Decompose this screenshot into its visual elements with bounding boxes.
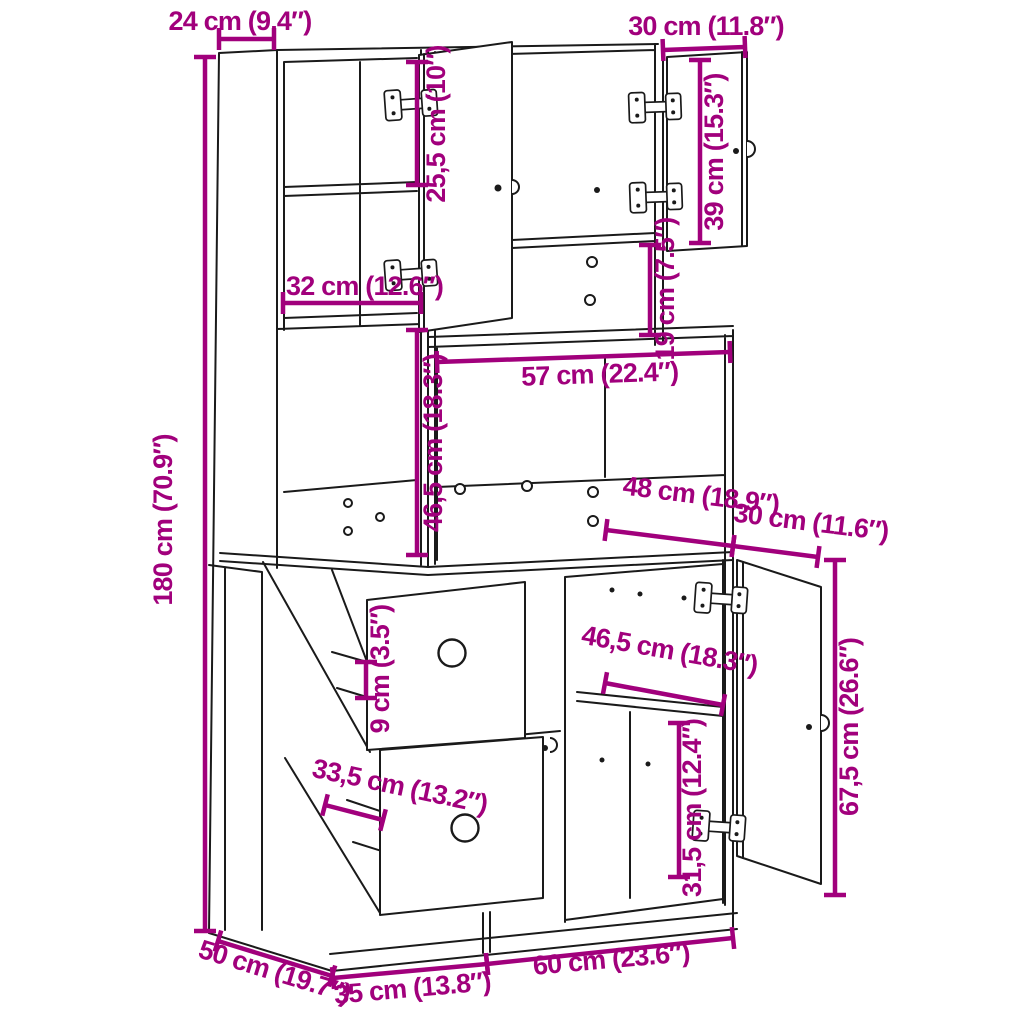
dimension-label-height_niche_small: 19 cm (7.5″) (650, 218, 680, 361)
dimension-line (663, 47, 745, 50)
dimension-tick (486, 953, 488, 975)
base-right-door-panel (737, 560, 821, 884)
dimension-height_gap: 9 cm (3.5″) (355, 605, 395, 734)
dimension-tick (605, 519, 608, 541)
dimension-label-width_base_left: 35 cm (13.8″) (333, 966, 492, 1010)
dimension-label-height_base_door: 67,5 cm (26.6″) (834, 638, 864, 816)
dimension-label-height_base_shelf: 31,5 cm (12.4″) (677, 719, 707, 897)
dimension-height_base_shelf: 31,5 cm (12.4″) (668, 719, 707, 897)
dimension-tick (732, 535, 735, 557)
door-handle-icon (821, 715, 829, 731)
dimension-label-width_base_right_bottom: 60 cm (23.6″) (532, 937, 691, 981)
dimension-tick (663, 39, 664, 61)
cabinet-dimension-drawing: 24 cm (9.4″)30 cm (11.8″)25,5 cm (10″)39… (0, 0, 1024, 1024)
door-handle-icon (550, 738, 557, 752)
door-finger-hole (439, 640, 466, 667)
dimension-depth_base_door: 30 cm (11.6″) (732, 498, 891, 568)
dimension-label-height_gap: 9 cm (3.5″) (365, 605, 395, 734)
dimension-label-height_tall_open: 46,5 cm (18.3″) (418, 354, 448, 532)
hinge-icon (694, 582, 748, 616)
dimension-height_total: 180 cm (70.9″) (148, 57, 216, 931)
dimension-tick (603, 672, 607, 694)
door-handle-icon (512, 180, 519, 194)
dimension-label-width_top_right_door: 30 cm (11.8″) (628, 11, 784, 41)
dimension-width_shelf: 32 cm (12.6″) (283, 271, 443, 314)
dimension-width_base_left: 35 cm (13.8″) (332, 953, 492, 1010)
dimension-tick (322, 794, 328, 815)
dimension-label-width_top_side: 24 cm (9.4″) (169, 6, 312, 36)
dimension-tick (817, 546, 820, 568)
dimension-line (733, 546, 818, 557)
dimension-height_tall_open: 46,5 cm (18.3″) (406, 330, 448, 555)
door-handle-icon (747, 141, 755, 157)
dimension-tick (732, 927, 734, 949)
dimension-width_top_side: 24 cm (9.4″) (169, 6, 312, 50)
diagram-canvas: 24 cm (9.4″)30 cm (11.8″)25,5 cm (10″)39… (0, 0, 1024, 1024)
dimension-label-width_niche: 57 cm (22.4″) (521, 356, 679, 391)
dimension-label-width_shelf: 32 cm (12.6″) (286, 271, 443, 301)
door-finger-hole (452, 815, 479, 842)
dimension-line (325, 805, 383, 820)
counter-top (220, 552, 733, 575)
dimension-height_top_compartment: 25,5 cm (10″) (406, 45, 451, 202)
dimension-tick (730, 341, 731, 363)
dimension-label-height_top_compartment: 25,5 cm (10″) (421, 45, 451, 202)
dimension-line (606, 530, 733, 546)
hinge-icon (629, 181, 682, 213)
dimension-label-height_total: 180 cm (70.9″) (148, 434, 178, 605)
dimension-label-height_right_door: 39 cm (15.3″) (699, 73, 729, 230)
dimension-width_niche: 57 cm (22.4″) (437, 341, 731, 392)
dimension-height_base_door: 67,5 cm (26.6″) (824, 560, 864, 895)
dimension-label-depth_base_door: 30 cm (11.6″) (732, 498, 890, 547)
dimension-width_top_right_door: 30 cm (11.8″) (628, 11, 784, 61)
